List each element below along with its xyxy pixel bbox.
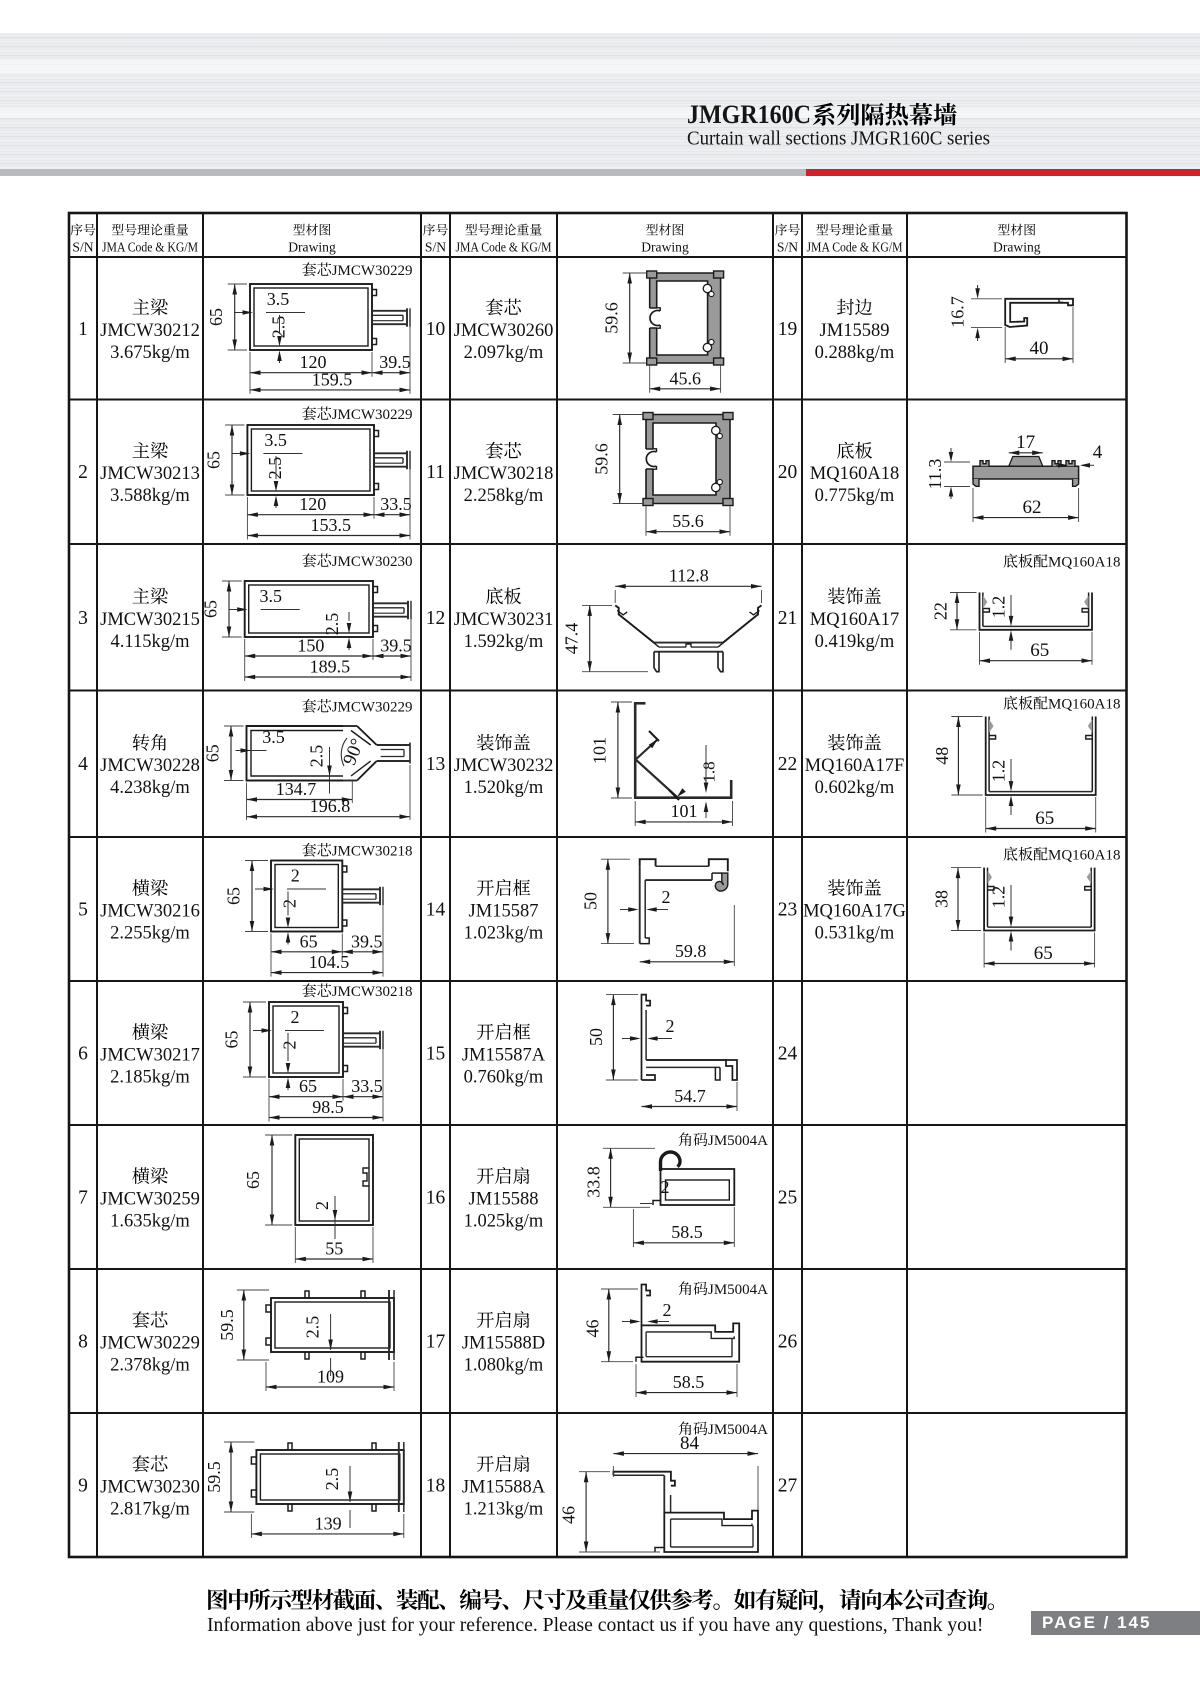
svg-text:JMCW30217: JMCW30217 [100,1046,200,1066]
svg-text:S/N: S/N [72,240,93,255]
svg-text:45.6: 45.6 [669,368,701,388]
svg-text:33.8: 33.8 [584,1166,604,1198]
svg-text:109: 109 [317,1367,344,1387]
svg-text:2: 2 [280,899,300,908]
svg-text:65: 65 [300,931,318,951]
svg-text:46: 46 [582,1320,602,1338]
svg-text:JMA Code & KG/M: JMA Code & KG/M [807,240,903,255]
svg-text:101: 101 [590,737,610,764]
svg-text:23: 23 [778,900,798,921]
svg-text:6: 6 [78,1044,88,1065]
svg-text:16.7: 16.7 [948,296,968,328]
svg-text:JM15587: JM15587 [469,902,539,922]
svg-text:65: 65 [202,744,222,762]
svg-text:101: 101 [671,801,698,821]
svg-text:9: 9 [78,1476,88,1497]
svg-text:10: 10 [426,319,446,340]
svg-text:4: 4 [78,754,88,775]
svg-text:JMCW30218: JMCW30218 [332,984,413,1000]
svg-text:1.592kg/m: 1.592kg/m [464,632,544,652]
svg-text:20: 20 [778,462,798,483]
svg-text:98.5: 98.5 [312,1097,344,1117]
svg-text:7: 7 [78,1188,88,1209]
svg-text:65: 65 [1034,943,1053,964]
svg-text:46: 46 [559,1506,579,1524]
svg-text:0.531kg/m: 0.531kg/m [815,924,895,944]
svg-text:47.4: 47.4 [562,623,582,655]
svg-text:120: 120 [299,494,326,514]
svg-text:139: 139 [315,1513,342,1533]
svg-text:JM5004A: JM5004A [708,1282,768,1298]
svg-text:3.5: 3.5 [260,586,283,606]
svg-text:11: 11 [426,462,445,483]
svg-text:JMCW30231: JMCW30231 [454,610,554,630]
svg-text:MQ160A17: MQ160A17 [810,610,899,630]
svg-text:JMCW30259: JMCW30259 [100,1190,200,1210]
svg-text:2.5: 2.5 [303,1316,323,1339]
svg-text:JMCW30212: JMCW30212 [100,321,200,341]
svg-text:JMCW30260: JMCW30260 [454,321,554,341]
svg-text:55.6: 55.6 [672,511,704,531]
svg-text:JMCW30218: JMCW30218 [332,844,413,860]
svg-text:59.6: 59.6 [602,302,622,334]
svg-text:1.213kg/m: 1.213kg/m [464,1500,544,1520]
svg-text:58.5: 58.5 [673,1372,705,1392]
svg-text:65: 65 [201,600,221,618]
svg-text:JMCW30229: JMCW30229 [332,407,413,423]
svg-text:40: 40 [1030,338,1049,359]
svg-text:2.5: 2.5 [322,1468,342,1491]
svg-text:MQ160A18: MQ160A18 [1048,848,1121,864]
svg-text:1.2: 1.2 [989,886,1009,909]
svg-text:59.8: 59.8 [675,941,707,961]
svg-text:MQ160A18: MQ160A18 [810,464,899,484]
svg-text:65: 65 [1030,640,1049,661]
svg-text:50: 50 [580,892,600,910]
svg-text:150: 150 [297,636,324,656]
svg-text:33.5: 33.5 [351,1076,383,1096]
svg-text:4: 4 [1093,442,1103,463]
svg-text:15: 15 [426,1044,446,1065]
svg-text:13: 13 [426,754,446,775]
svg-text:2: 2 [663,1300,672,1320]
svg-text:59.6: 59.6 [592,443,612,475]
svg-text:S/N: S/N [425,240,446,255]
svg-text:22: 22 [930,602,950,620]
svg-text:1.023kg/m: 1.023kg/m [464,924,544,944]
svg-text:5: 5 [78,900,88,921]
svg-text:48: 48 [932,747,952,765]
svg-text:21: 21 [778,608,798,629]
svg-text:12: 12 [426,608,446,629]
svg-text:2.255kg/m: 2.255kg/m [110,924,190,944]
svg-text:2.5: 2.5 [307,745,327,768]
svg-text:3.5: 3.5 [262,727,285,747]
svg-text:25: 25 [778,1188,798,1209]
svg-text:24: 24 [778,1044,798,1065]
svg-text:JMCW30228: JMCW30228 [100,756,200,776]
svg-text:2.378kg/m: 2.378kg/m [110,1356,190,1376]
svg-text:4.238kg/m: 4.238kg/m [110,778,190,798]
svg-text:2: 2 [291,866,300,886]
svg-text:65: 65 [224,887,244,905]
svg-text:2.097kg/m: 2.097kg/m [464,343,544,363]
svg-text:3.588kg/m: 3.588kg/m [110,486,190,506]
svg-text:Drawing: Drawing [993,240,1041,255]
svg-text:JMCW30229: JMCW30229 [332,263,413,279]
svg-text:Information above just for you: Information above just for your referenc… [207,1614,983,1636]
svg-text:2: 2 [291,1007,300,1027]
svg-text:JMCW30213: JMCW30213 [100,464,200,484]
svg-text:JM5004A: JM5004A [708,1422,768,1438]
svg-text:58.5: 58.5 [671,1222,703,1242]
svg-text:2.258kg/m: 2.258kg/m [464,486,544,506]
svg-text:19: 19 [778,319,798,340]
svg-text:S/N: S/N [777,240,798,255]
svg-text:3.5: 3.5 [267,289,290,309]
svg-text:3.675kg/m: 3.675kg/m [110,343,190,363]
svg-text:JMGR160C: JMGR160C [687,100,811,129]
svg-text:50: 50 [586,1028,606,1046]
svg-text:JMA Code & KG/M: JMA Code & KG/M [102,240,198,255]
svg-text:4.115kg/m: 4.115kg/m [111,632,191,652]
svg-text:84: 84 [680,1433,700,1454]
svg-text:Drawing: Drawing [641,240,689,255]
svg-text:3: 3 [78,608,88,629]
svg-text:65: 65 [1035,808,1054,829]
svg-text:39.5: 39.5 [380,636,412,656]
svg-text:JMCW30215: JMCW30215 [100,610,200,630]
svg-text:54.7: 54.7 [674,1086,706,1106]
svg-text:153.5: 153.5 [310,515,351,535]
svg-text:JMCW30232: JMCW30232 [454,756,554,776]
svg-text:38: 38 [931,890,951,908]
svg-text:1.2: 1.2 [989,596,1009,619]
svg-text:JMCW30216: JMCW30216 [100,902,200,922]
svg-text:1.8: 1.8 [700,761,719,782]
svg-text:0.775kg/m: 0.775kg/m [815,486,895,506]
svg-text:JMA Code & KG/M: JMA Code & KG/M [456,240,552,255]
svg-text:8: 8 [78,1332,88,1353]
svg-text:2.5: 2.5 [322,613,342,636]
svg-text:11.3: 11.3 [925,459,945,490]
svg-text:22: 22 [778,754,798,775]
svg-text:2.185kg/m: 2.185kg/m [110,1068,190,1088]
svg-text:2: 2 [661,1177,670,1197]
svg-text:112.8: 112.8 [669,566,709,586]
svg-text:55: 55 [325,1239,343,1259]
svg-text:14: 14 [426,900,446,921]
svg-text:JM15588: JM15588 [469,1190,539,1210]
svg-text:2: 2 [280,1041,300,1050]
svg-text:65: 65 [243,1171,263,1189]
svg-text:0.602kg/m: 0.602kg/m [815,778,895,798]
svg-text:17: 17 [426,1332,446,1353]
svg-text:MQ160A18: MQ160A18 [1048,555,1121,571]
svg-text:59.5: 59.5 [217,1309,237,1341]
svg-text:59.5: 59.5 [204,1461,224,1493]
svg-text:2.5: 2.5 [265,457,285,480]
svg-text:65: 65 [206,308,226,326]
svg-text:27: 27 [778,1476,798,1497]
svg-text:39.5: 39.5 [379,352,411,372]
svg-text:1.025kg/m: 1.025kg/m [464,1212,544,1232]
svg-text:Drawing: Drawing [288,240,336,255]
svg-text:2.817kg/m: 2.817kg/m [110,1500,190,1520]
svg-text:3.5: 3.5 [264,430,287,450]
svg-text:MQ160A18: MQ160A18 [1048,697,1121,713]
svg-text:0.419kg/m: 0.419kg/m [815,632,895,652]
svg-text:104.5: 104.5 [309,952,350,972]
svg-text:MQ160A17F: MQ160A17F [805,756,905,776]
svg-text:2: 2 [78,462,88,483]
svg-text:JMCW30229: JMCW30229 [332,700,413,716]
svg-text:JMCW30229: JMCW30229 [100,1334,200,1354]
svg-text:JM15587A: JM15587A [462,1046,546,1066]
svg-text:JMCW30230: JMCW30230 [100,1478,200,1498]
svg-text:65: 65 [222,1031,242,1049]
svg-text:62: 62 [1023,497,1042,518]
svg-text:33.5: 33.5 [380,494,412,514]
svg-text:2: 2 [662,887,671,907]
svg-text:65: 65 [299,1076,317,1096]
svg-text:JMCW30230: JMCW30230 [332,554,413,570]
svg-text:18: 18 [426,1476,446,1497]
svg-text:1.2: 1.2 [989,760,1009,783]
svg-text:2: 2 [312,1201,332,1210]
svg-text:1.520kg/m: 1.520kg/m [464,778,544,798]
svg-text:JMCW30218: JMCW30218 [454,464,554,484]
svg-text:2: 2 [666,1016,675,1036]
svg-text:16: 16 [426,1188,446,1209]
svg-text:JM15588D: JM15588D [462,1334,545,1354]
svg-text:0.288kg/m: 0.288kg/m [815,343,895,363]
svg-text:2.5: 2.5 [269,316,289,339]
svg-text:JM15588A: JM15588A [462,1478,546,1498]
svg-text:26: 26 [778,1332,798,1353]
svg-text:39.5: 39.5 [351,931,383,951]
svg-text:17: 17 [1016,432,1035,453]
svg-text:159.5: 159.5 [312,369,353,389]
svg-text:196.8: 196.8 [310,796,351,816]
svg-text:189.5: 189.5 [310,657,351,677]
svg-text:1.080kg/m: 1.080kg/m [464,1356,544,1376]
svg-text:JM15589: JM15589 [820,321,890,341]
svg-text:0.760kg/m: 0.760kg/m [464,1068,544,1088]
svg-text:Curtain wall sections JMGR160C: Curtain wall sections JMGR160C series [687,128,990,150]
svg-text:JM5004A: JM5004A [708,1133,768,1149]
svg-text:MQ160A17G: MQ160A17G [803,902,906,922]
svg-text:1: 1 [78,319,88,340]
svg-text:1.635kg/m: 1.635kg/m [110,1212,190,1232]
svg-text:65: 65 [204,451,224,469]
